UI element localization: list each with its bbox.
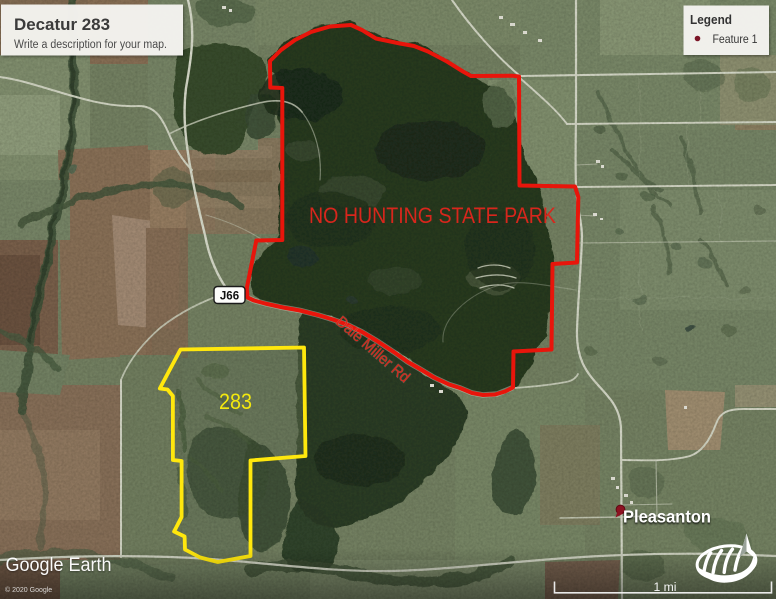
svg-text:Pleasanton: Pleasanton	[623, 507, 711, 527]
svg-text:Write a description for your m: Write a description for your map.	[14, 39, 167, 51]
svg-text:Google Earth: Google Earth	[6, 555, 112, 576]
svg-text:Decatur 283: Decatur 283	[14, 15, 110, 34]
svg-text:© 2020 Google: © 2020 Google	[5, 586, 52, 594]
svg-text:1 mi: 1 mi	[654, 582, 677, 594]
svg-text:Feature 1: Feature 1	[713, 32, 758, 46]
svg-text:283: 283	[219, 389, 252, 414]
svg-text:NO HUNTING STATE PARK: NO HUNTING STATE PARK	[309, 203, 556, 228]
svg-text:J66: J66	[220, 291, 239, 303]
svg-text:Legend: Legend	[690, 12, 732, 27]
